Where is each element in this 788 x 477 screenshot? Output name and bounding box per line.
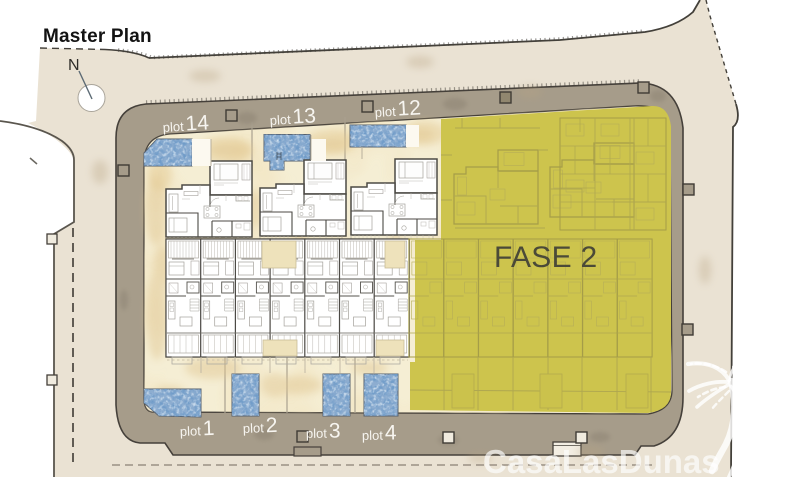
svg-text:N: N: [68, 57, 80, 74]
svg-text:Master Plan: Master Plan: [43, 26, 152, 47]
svg-text:CasaLasDunas: CasaLasDunas: [483, 443, 720, 477]
svg-text:FASE 2: FASE 2: [494, 241, 598, 274]
